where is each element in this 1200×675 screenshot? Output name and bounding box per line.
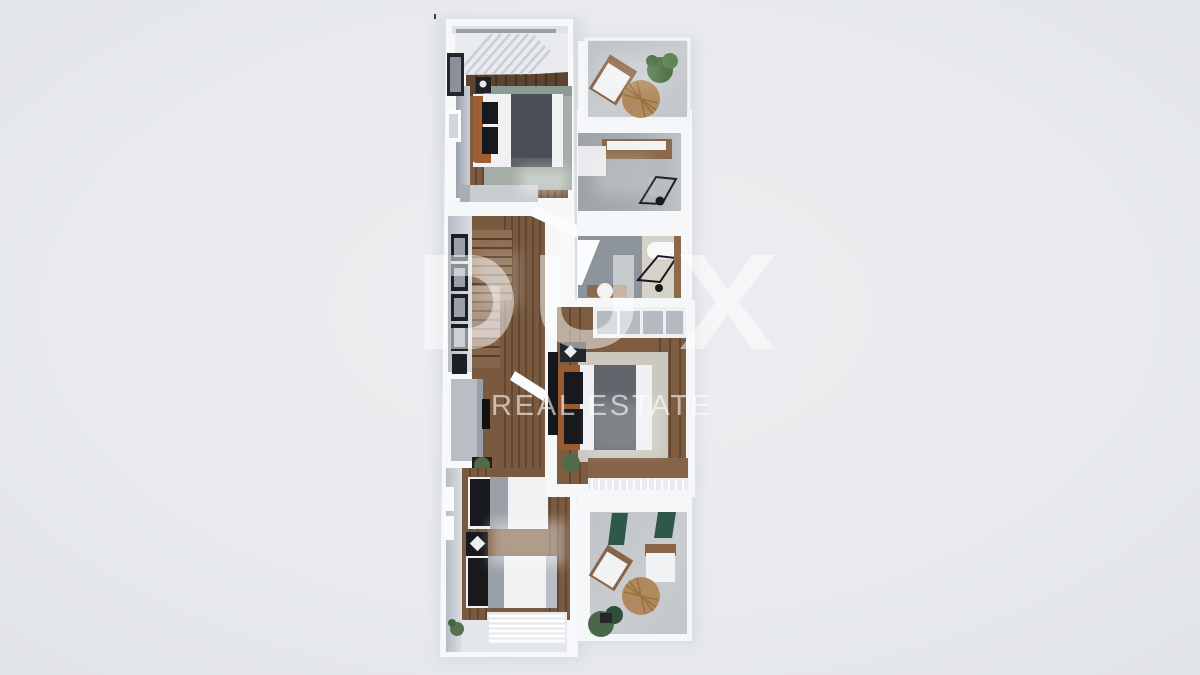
svg-text:REAL ESTATE: REAL ESTATE [491,390,713,422]
